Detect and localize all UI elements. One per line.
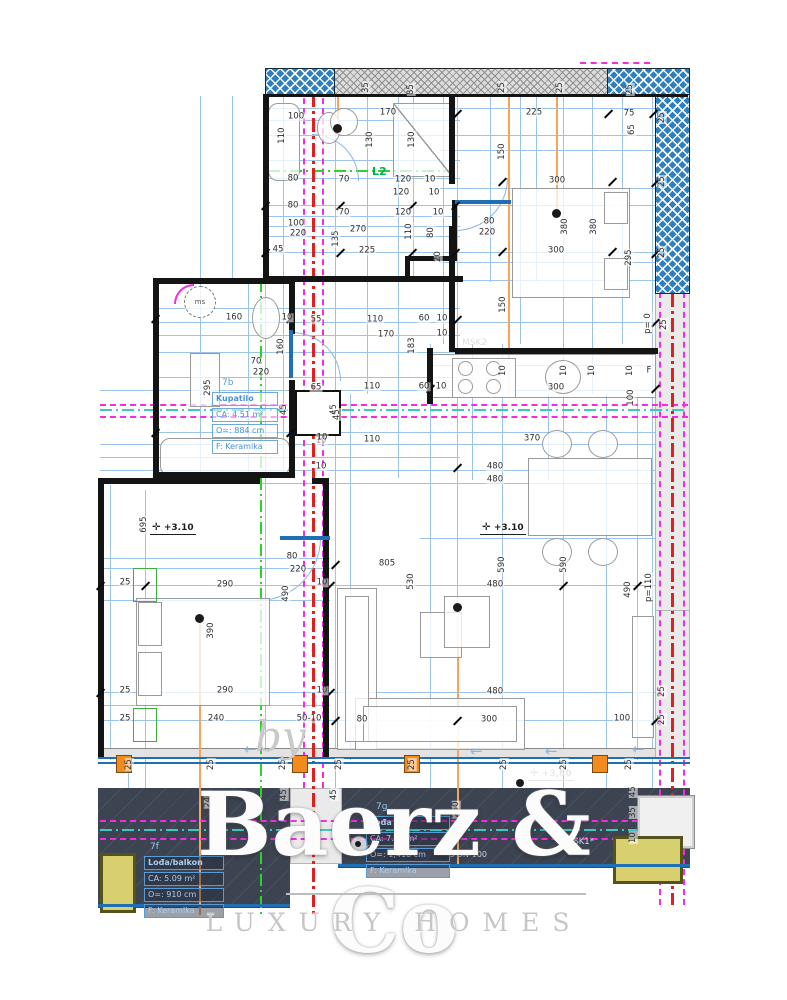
insulation-hatch [607, 68, 690, 96]
window-direction-arrow: ← [545, 744, 558, 759]
dimension-label: 80 [286, 552, 299, 561]
dimension-label: 10 [560, 364, 569, 377]
room-label-kupatilo: Kupatilo CA: 4.51 m² O=: 884 cm F: Keram… [212, 392, 278, 456]
dimension-label: 183 [408, 336, 417, 354]
dimension-label: 35 [629, 806, 638, 819]
dimension-label: 220 [289, 229, 307, 238]
dimension-label: 300 [548, 176, 566, 185]
furniture [444, 596, 490, 648]
dimension-label: 45 [333, 408, 342, 421]
furniture [195, 614, 204, 623]
dimension-label: 805 [378, 559, 396, 568]
dimension-label: 590 [560, 555, 569, 573]
dimension-label: 20 [434, 250, 443, 263]
dimension-label: 10 [499, 364, 508, 377]
leaf [280, 536, 330, 540]
grid-line [335, 96, 336, 788]
dimension-label: 60 [418, 382, 431, 391]
furniture [393, 103, 453, 177]
dimension-label: 10 [316, 433, 329, 442]
dimension-label: 80 [427, 226, 436, 239]
dimension-label: 300 [547, 246, 565, 255]
wall [455, 348, 658, 354]
section-line-magenta [100, 416, 688, 418]
dimension-label: 65 [628, 123, 637, 136]
dimension-label: 25 [658, 175, 667, 188]
furniture [528, 458, 652, 536]
dimension-label: 110 [278, 126, 287, 144]
section-line-magenta [100, 404, 688, 406]
dimension-label: 480 [486, 687, 504, 696]
furniture [604, 192, 628, 224]
dimension-label: 290 [216, 580, 234, 589]
label-msk2: MSK2 [462, 339, 487, 348]
dimension-label: 10 [435, 382, 448, 391]
dimension-label: 10 [316, 686, 329, 695]
furniture [588, 430, 618, 458]
dimension-label: 10 [436, 329, 449, 338]
dimension-label: 270 [349, 225, 367, 234]
wall [153, 278, 159, 478]
dimension-label: 25 [658, 713, 667, 726]
watermark-by: by [255, 712, 306, 761]
dimension-label: 25 [658, 246, 667, 259]
dimension-label: 295 [204, 378, 213, 396]
wall [449, 94, 455, 184]
dimension-label: 25 [626, 83, 635, 96]
dimension-label: 35 [362, 81, 371, 94]
axis-label-l2: L2 [372, 166, 387, 177]
dimension-label: 160 [277, 337, 286, 355]
orangeblk [592, 755, 608, 773]
room-name: Kupatilo [212, 392, 278, 406]
dimension-label: 75 [623, 109, 636, 118]
dimension-label: 120 [394, 208, 412, 217]
wall [427, 348, 433, 404]
dimension-label: 10 [629, 831, 638, 844]
dimension-label: 65 [310, 383, 323, 392]
furniture [138, 652, 162, 696]
dimension-label: 25 [660, 318, 669, 331]
dimension-label: 695 [140, 515, 149, 533]
furniture [458, 379, 473, 394]
dimension-label: 10 [626, 364, 635, 377]
dimension-label: 100 [287, 219, 305, 228]
dimension-label: 25 [207, 758, 216, 771]
dimension-label: 110 [405, 222, 414, 240]
dimension-label: 70 [338, 175, 351, 184]
furniture [486, 379, 501, 394]
grid-line [440, 150, 655, 151]
dimension-label: 490 [624, 580, 633, 598]
dimension-label: 240 [207, 714, 225, 723]
wall [98, 478, 104, 758]
dimension-label: 10 [281, 313, 294, 322]
dimension-label: 225 [525, 108, 543, 117]
dimension-label: 85 [407, 83, 416, 96]
dimension-label: 130 [408, 130, 417, 148]
dimension-label: 25 [658, 685, 667, 698]
dimension-label: 380 [590, 217, 599, 235]
furniture [632, 616, 654, 738]
dimension-label: 60 [418, 314, 431, 323]
dimension-label: 110 [363, 382, 381, 391]
dimension-label: 80 [483, 217, 496, 226]
dimension-label: 480 [486, 475, 504, 484]
dimension-label: 25 [335, 758, 344, 771]
dimension-label: 25 [500, 758, 509, 771]
furniture [588, 538, 618, 566]
furniture [333, 124, 342, 133]
dimension-label: 290 [216, 686, 234, 695]
dimension-label: 10 [428, 188, 441, 197]
dimension-label: 150 [498, 142, 507, 160]
door-swing-arc [455, 178, 508, 231]
grid-line [420, 538, 660, 539]
wall [98, 478, 260, 484]
furniture [542, 430, 572, 458]
dimension-label: 55 [310, 315, 323, 324]
dimension-label: 70 [250, 357, 263, 366]
dimension-label: 80 [287, 201, 300, 210]
dimension-label: 25 [556, 81, 565, 94]
dimension-label: 10 [436, 314, 449, 323]
dimension-label: 480 [486, 462, 504, 471]
dimension-label: 25 [119, 714, 132, 723]
dimension-label: 390 [207, 621, 216, 639]
grid-line [100, 585, 688, 586]
dimension-label: 25 [625, 758, 634, 771]
dimension-label: F [646, 366, 653, 375]
dimension-label: 10 [316, 578, 329, 587]
elevation-marker: +3.10 [480, 522, 526, 535]
insulation-hatch [265, 68, 335, 96]
furniture [458, 361, 473, 376]
dimension-label: 130 [366, 130, 375, 148]
dimension-label: 370 [523, 434, 541, 443]
dimension-label: 300 [547, 383, 565, 392]
dimension-label: p= 0 [644, 312, 653, 335]
wall [153, 278, 295, 284]
dimension-label: 10 [432, 208, 445, 217]
dimension-label: 170 [377, 330, 395, 339]
dimension-tick [604, 109, 613, 118]
wall [405, 256, 410, 282]
dimension-label: 590 [498, 555, 507, 573]
dimension-label: 45 [272, 245, 285, 254]
insulation-hatch [655, 94, 690, 294]
floor-plan-page: ←←←←100170130130110150225756535852525252… [0, 0, 787, 1000]
furniture [138, 602, 162, 646]
dimension-label: 220 [289, 565, 307, 574]
watermark-tagline: LUXURY HOMES [178, 908, 610, 937]
furniture [552, 209, 561, 218]
leaf [289, 330, 293, 378]
door-swing-arc-magenta [174, 284, 194, 304]
window-direction-arrow: ← [470, 744, 483, 759]
dimension-label: 135 [332, 229, 341, 247]
dimension-label: 80 [356, 715, 369, 724]
dimension-label: 300 [480, 715, 498, 724]
dimension-label: 25 [498, 81, 507, 94]
dimension-label: 150 [499, 295, 508, 313]
dimension-label: 80 [287, 174, 300, 183]
leaf [455, 200, 511, 204]
dimension-label: 70 [338, 208, 351, 217]
door-swing-arc [292, 332, 341, 381]
axis-line-teal [100, 409, 688, 411]
wall [289, 278, 295, 334]
dimension-label: 25 [408, 758, 417, 771]
dimension-label: 45 [280, 403, 289, 416]
dimension-label: 100 [613, 714, 631, 723]
furniture [453, 603, 462, 612]
dimension-label: 480 [486, 580, 504, 589]
dimension-label: 10 [424, 175, 437, 184]
wall [405, 256, 457, 261]
elevation-marker: +3.10 [150, 522, 196, 535]
dimension-label: 10 [588, 364, 597, 377]
dimension-label: 100 [627, 388, 636, 406]
green [133, 708, 157, 742]
furniture [252, 297, 280, 339]
dimension-label: 490 [282, 584, 291, 602]
room-area: CA: 4.51 m² [212, 408, 278, 422]
grid-line [110, 485, 111, 760]
grid-line [232, 96, 233, 282]
dimension-label: p=110 [645, 572, 654, 603]
section-line-magenta [580, 62, 650, 64]
dimension-label: 25 [658, 111, 667, 124]
wall [323, 478, 329, 758]
window-direction-arrow: ← [632, 742, 645, 757]
dimension-tick [608, 177, 617, 186]
room-number-7f: 7f [150, 843, 159, 852]
dimension-label: 110 [363, 435, 381, 444]
dimension-label: 380 [561, 217, 570, 235]
yellow [613, 836, 683, 884]
dimension-label: 10 [315, 462, 328, 471]
room-number-7b: 7b [222, 379, 233, 388]
dimension-label: 100 [287, 112, 305, 121]
dimension-label: 25 [125, 758, 134, 771]
dimension-label: 45 [629, 785, 638, 798]
dimension-label: 170 [379, 108, 397, 117]
watermark-brand: Baerz & Co [168, 776, 620, 970]
dimension-label: 120 [392, 188, 410, 197]
dimension-label: 530 [407, 572, 416, 590]
watermark-divider [286, 893, 586, 895]
dimension-label: 120 [394, 175, 412, 184]
dimension-label: 160 [225, 313, 243, 322]
dimension-label: 220 [252, 368, 270, 377]
dimension-label: 225 [358, 246, 376, 255]
dimension-label: 295 [625, 248, 634, 266]
dimension-label: 110 [366, 315, 384, 324]
room-floor: F: Keramika [212, 440, 278, 454]
dimension-label: 220 [478, 228, 496, 237]
dimension-label: 25 [119, 578, 132, 587]
dimension-label: 25 [119, 686, 132, 695]
room-perimeter: O=: 884 cm [212, 424, 278, 438]
